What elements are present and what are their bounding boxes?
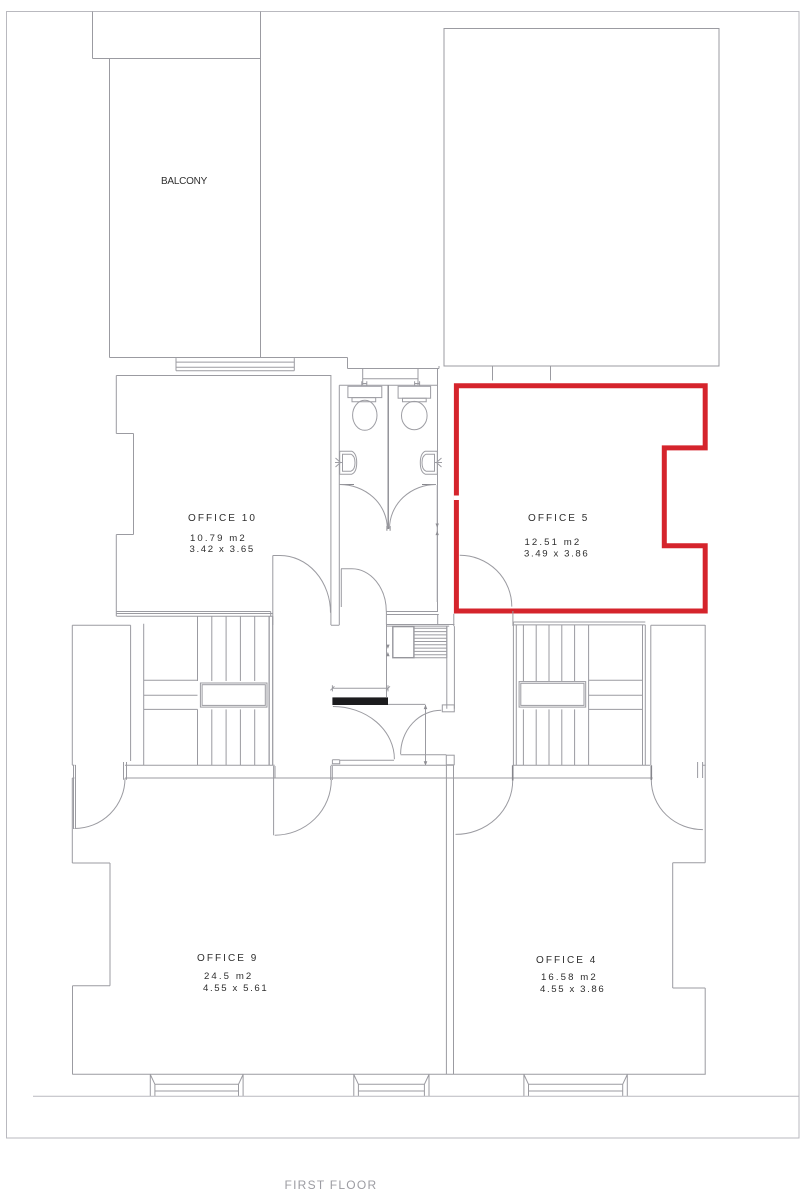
svg-text:OFFICE 5: OFFICE 5 [528, 513, 589, 524]
svg-text:3.49 x 3.86: 3.49 x 3.86 [524, 549, 589, 560]
svg-text:4.55 x 3.86: 4.55 x 3.86 [540, 984, 605, 995]
svg-text:4.55 x 5.61: 4.55 x 5.61 [203, 983, 268, 994]
svg-text:3.42 x 3.65: 3.42 x 3.65 [190, 544, 255, 555]
svg-text:OFFICE 4: OFFICE 4 [536, 955, 597, 966]
svg-text:OFFICE 9: OFFICE 9 [197, 953, 258, 964]
svg-text:24.5 m2: 24.5 m2 [204, 971, 253, 982]
svg-text:10.79 m2: 10.79 m2 [190, 533, 247, 544]
svg-text:OFFICE 10: OFFICE 10 [188, 513, 257, 524]
svg-text:16.58 m2: 16.58 m2 [541, 972, 598, 983]
svg-text:BALCONY: BALCONY [161, 176, 208, 187]
svg-text:FIRST FLOOR: FIRST FLOOR [285, 1178, 378, 1192]
svg-text:12.51 m2: 12.51 m2 [525, 537, 582, 548]
